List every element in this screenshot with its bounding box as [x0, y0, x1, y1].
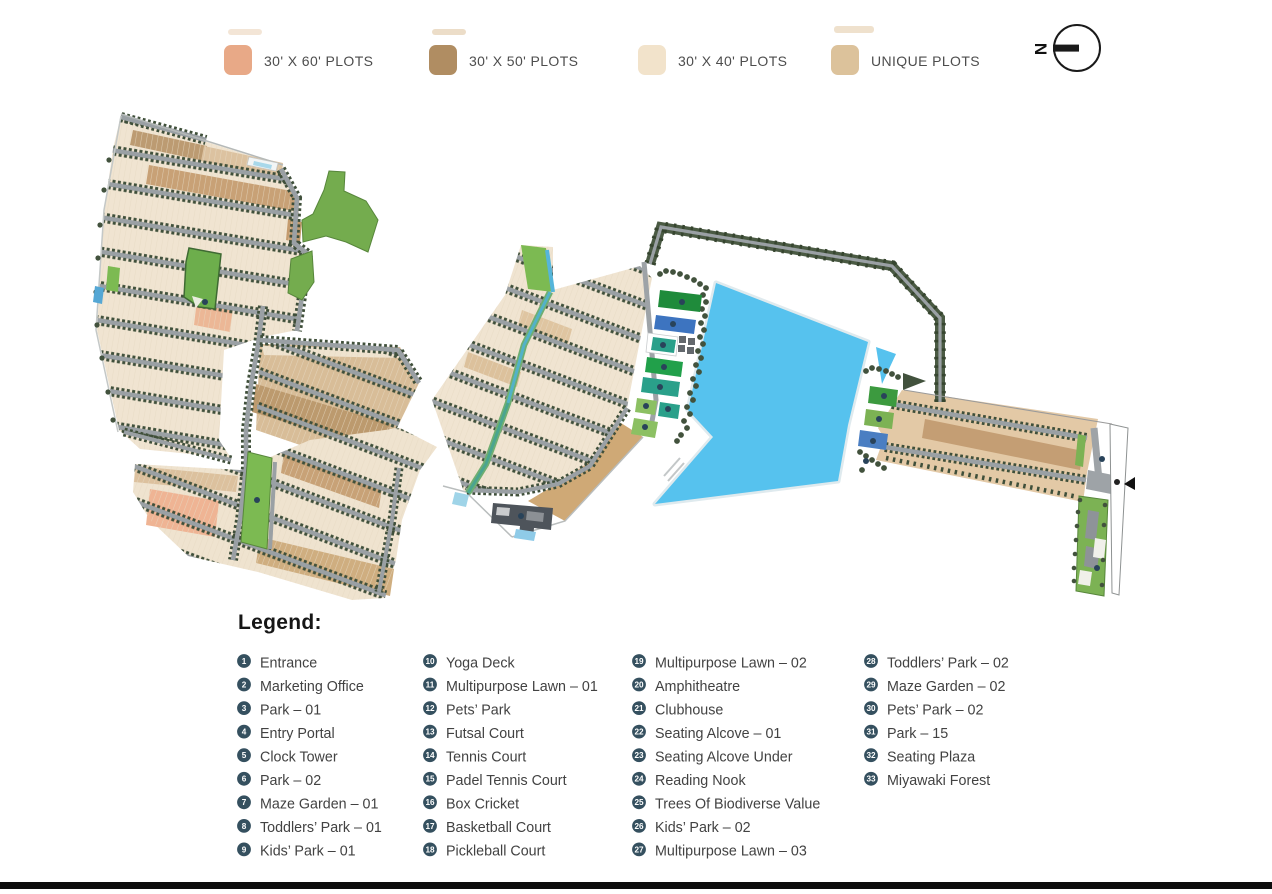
svg-text:20: 20: [634, 680, 644, 689]
svg-text:13: 13: [425, 728, 435, 737]
svg-text:15: 15: [425, 775, 435, 784]
svg-text:7: 7: [242, 798, 247, 807]
svg-text:19: 19: [634, 657, 644, 666]
svg-text:30' X 40' PLOTS: 30' X 40' PLOTS: [678, 53, 787, 69]
svg-text:Toddlers’ Park – 01: Toddlers’ Park – 01: [260, 820, 382, 836]
svg-text:12: 12: [425, 704, 435, 713]
svg-text:Multipurpose Lawn – 02: Multipurpose Lawn – 02: [655, 655, 807, 671]
svg-text:24: 24: [634, 775, 644, 784]
svg-text:8: 8: [242, 822, 247, 831]
svg-text:Clock Tower: Clock Tower: [260, 750, 338, 766]
svg-text:Yoga Deck: Yoga Deck: [446, 655, 515, 671]
svg-text:Clubhouse: Clubhouse: [655, 702, 723, 718]
svg-text:Box Cricket: Box Cricket: [446, 797, 519, 813]
svg-text:Entrance: Entrance: [260, 655, 317, 671]
svg-text:27: 27: [634, 845, 644, 854]
svg-text:25: 25: [634, 798, 644, 807]
svg-text:Toddlers’ Park – 02: Toddlers’ Park – 02: [887, 655, 1009, 671]
svg-text:30' X 60' PLOTS: 30' X 60' PLOTS: [264, 53, 373, 69]
svg-text:2: 2: [242, 680, 247, 689]
svg-text:Kids’ Park – 01: Kids’ Park – 01: [260, 844, 356, 860]
svg-text:11: 11: [426, 680, 435, 689]
svg-text:Kids’ Park – 02: Kids’ Park – 02: [655, 820, 751, 836]
svg-text:Pets’ Park: Pets’ Park: [446, 702, 511, 718]
svg-text:29: 29: [866, 680, 876, 689]
svg-text:6: 6: [242, 775, 247, 784]
svg-text:4: 4: [242, 728, 247, 737]
svg-text:Multipurpose Lawn – 03: Multipurpose Lawn – 03: [655, 844, 807, 860]
svg-text:9: 9: [242, 845, 247, 854]
svg-text:UNIQUE PLOTS: UNIQUE PLOTS: [871, 53, 980, 69]
svg-text:21: 21: [634, 704, 644, 713]
svg-text:17: 17: [425, 822, 435, 831]
svg-text:Maze Garden – 01: Maze Garden – 01: [260, 797, 378, 813]
svg-text:30' X 50' PLOTS: 30' X 50' PLOTS: [469, 53, 578, 69]
svg-text:Entry Portal: Entry Portal: [260, 726, 335, 742]
svg-text:Park – 15: Park – 15: [887, 726, 948, 742]
svg-text:Amphitheatre: Amphitheatre: [655, 679, 740, 695]
svg-text:Seating Alcove Under: Seating Alcove Under: [655, 750, 793, 766]
svg-text:Seating Plaza: Seating Plaza: [887, 750, 975, 766]
svg-text:Reading Nook: Reading Nook: [655, 773, 746, 789]
svg-text:Miyawaki Forest: Miyawaki Forest: [887, 773, 990, 789]
svg-text:31: 31: [866, 728, 876, 737]
svg-text:18: 18: [425, 845, 435, 854]
svg-text:Pickleball Court: Pickleball Court: [446, 844, 545, 860]
svg-text:33: 33: [866, 775, 876, 784]
svg-text:Marketing Office: Marketing Office: [260, 679, 364, 695]
svg-text:Park – 02: Park – 02: [260, 773, 321, 789]
svg-text:16: 16: [425, 798, 435, 807]
svg-text:Seating Alcove – 01: Seating Alcove – 01: [655, 726, 781, 742]
svg-text:Multipurpose Lawn – 01: Multipurpose Lawn – 01: [446, 679, 598, 695]
svg-text:Tennis Court: Tennis Court: [446, 750, 526, 766]
svg-text:Legend:: Legend:: [238, 611, 322, 634]
svg-text:Pets’ Park – 02: Pets’ Park – 02: [887, 702, 983, 718]
svg-text:23: 23: [634, 751, 644, 760]
svg-text:3: 3: [242, 704, 247, 713]
svg-text:22: 22: [634, 728, 644, 737]
svg-text:Park – 01: Park – 01: [260, 702, 321, 718]
svg-text:N: N: [1031, 43, 1050, 55]
svg-text:26: 26: [634, 822, 644, 831]
svg-text:5: 5: [242, 751, 247, 760]
svg-text:Padel Tennis Court: Padel Tennis Court: [446, 773, 567, 789]
svg-text:28: 28: [866, 657, 876, 666]
svg-text:14: 14: [425, 751, 435, 760]
svg-text:30: 30: [866, 704, 876, 713]
svg-text:Basketball Court: Basketball Court: [446, 820, 551, 836]
svg-text:Trees Of Biodiverse Value: Trees Of Biodiverse Value: [655, 797, 820, 813]
svg-text:Futsal Court: Futsal Court: [446, 726, 524, 742]
svg-text:32: 32: [866, 751, 876, 760]
svg-text:10: 10: [425, 657, 435, 666]
svg-text:1: 1: [242, 657, 247, 666]
svg-text:Maze Garden – 02: Maze Garden – 02: [887, 679, 1005, 695]
